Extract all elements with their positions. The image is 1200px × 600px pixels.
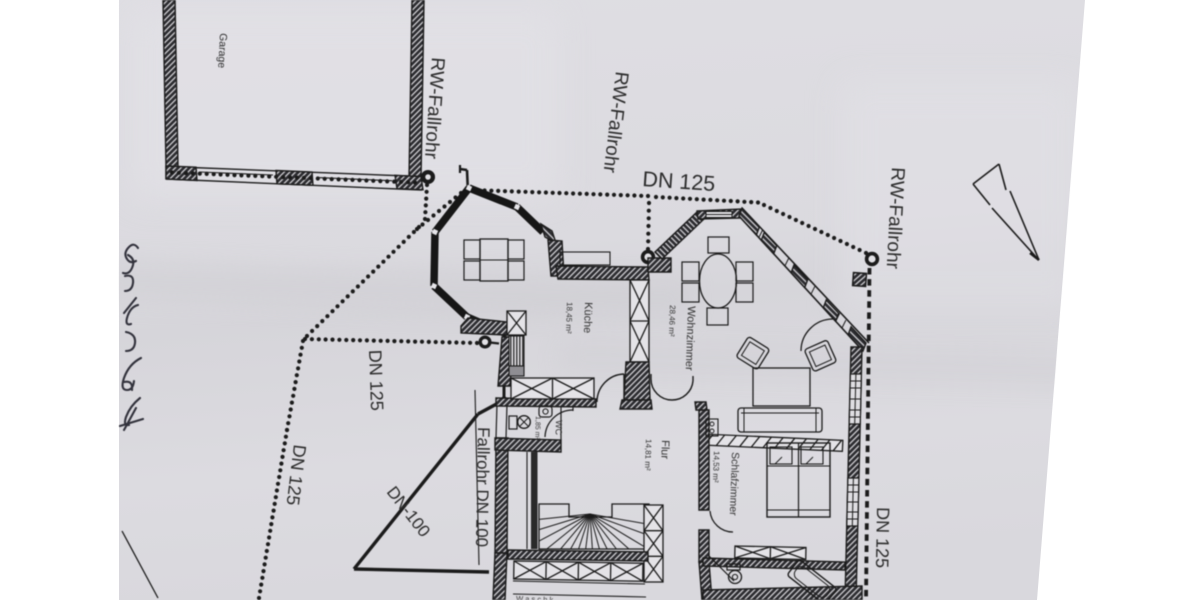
svg-text:Fallrohr DN 100: Fallrohr DN 100 <box>472 427 493 547</box>
svg-text:14,81 m²: 14,81 m² <box>643 439 653 471</box>
svg-text:W a s c h k.: W a s c h k. <box>516 594 555 600</box>
svg-text:DN 125: DN 125 <box>365 349 387 411</box>
svg-text:Schlafzimmer: Schlafzimmer <box>727 452 741 516</box>
svg-text:Wohnzimmer: Wohnzimmer <box>683 306 697 371</box>
svg-text:Garage: Garage <box>215 33 229 69</box>
svg-text:14,53 m²: 14,53 m² <box>711 451 721 483</box>
svg-text:Flur: Flur <box>658 440 671 460</box>
svg-text:DN 125: DN 125 <box>642 167 716 196</box>
svg-text:28,46 m²: 28,46 m² <box>667 305 677 337</box>
svg-text:1,85 m²: 1,85 m² <box>533 416 541 441</box>
svg-text:WC: WC <box>553 420 564 436</box>
svg-text:DN 125: DN 125 <box>872 507 893 568</box>
svg-text:18,45 m²: 18,45 m² <box>564 302 574 334</box>
svg-text:Küche: Küche <box>581 302 594 334</box>
